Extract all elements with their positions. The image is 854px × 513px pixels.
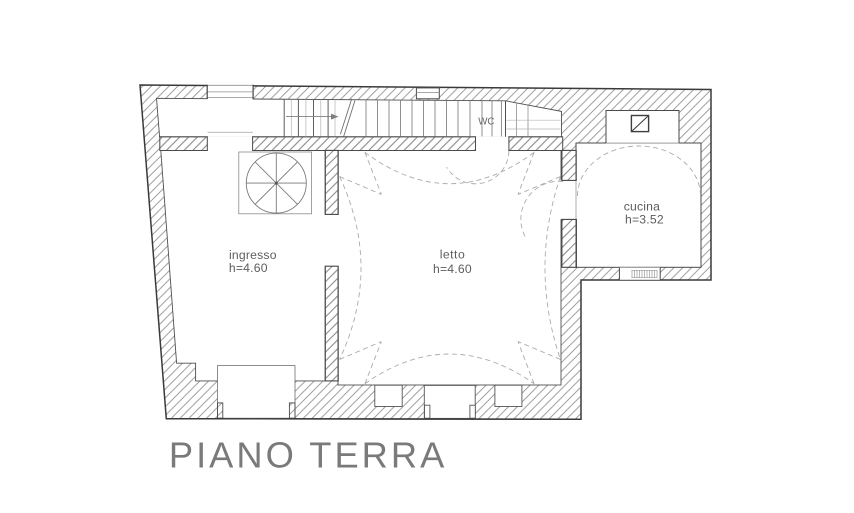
svg-text:ingresso: ingresso xyxy=(229,248,277,262)
svg-text:WC: WC xyxy=(478,117,494,128)
svg-text:h=4.60: h=4.60 xyxy=(229,261,268,275)
svg-text:letto: letto xyxy=(440,248,466,262)
svg-text:h=4.60: h=4.60 xyxy=(433,262,472,276)
svg-text:h=3.52: h=3.52 xyxy=(625,212,664,226)
svg-text:PIANO TERRA: PIANO TERRA xyxy=(169,434,447,475)
